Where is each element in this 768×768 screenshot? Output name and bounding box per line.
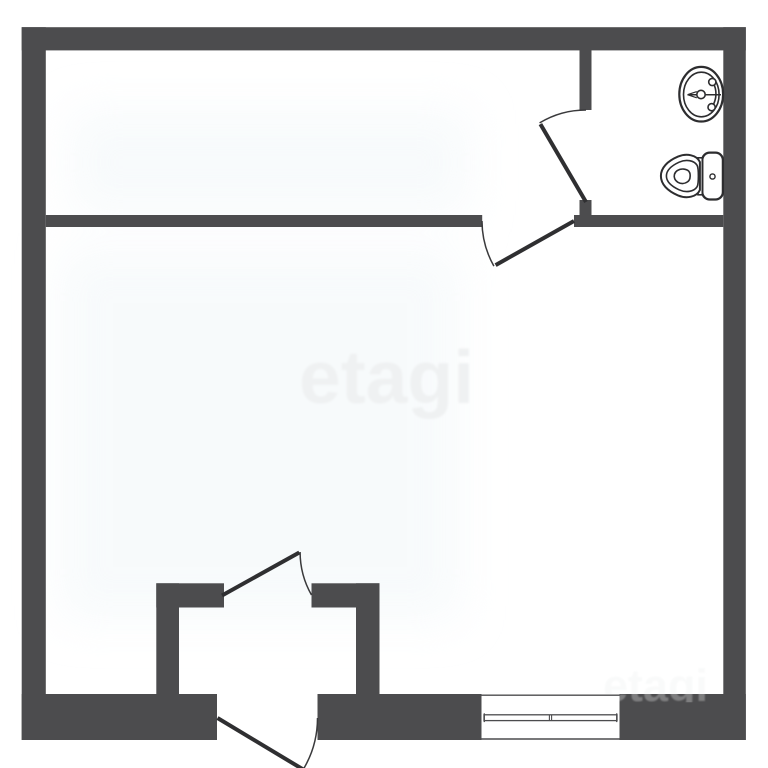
svg-text:etagi: etagi	[299, 335, 474, 419]
